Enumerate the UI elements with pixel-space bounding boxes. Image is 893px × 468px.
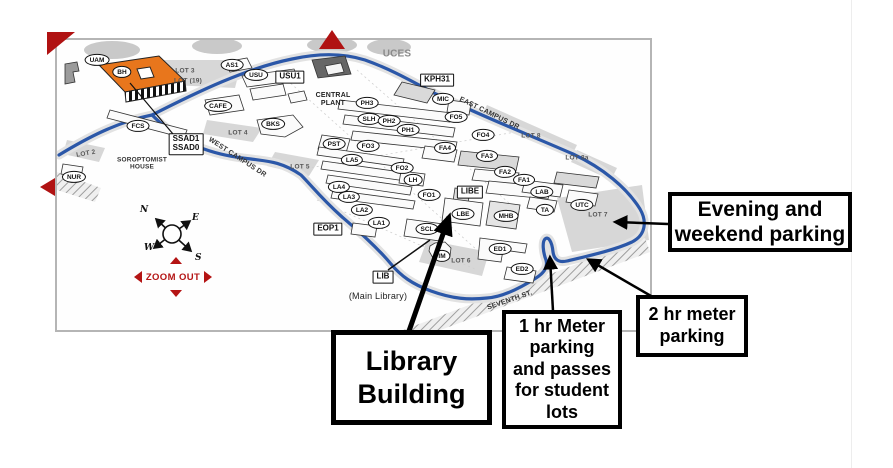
map-label--main-library-: (Main Library) <box>349 291 407 301</box>
zoom-out-label[interactable]: ZOOM OUT <box>146 272 200 283</box>
map-label-soroptomist-house: SOROPTOMIST HOUSE <box>117 157 167 172</box>
zoom-out-right-arrow-icon[interactable] <box>204 271 212 283</box>
zoom-out-up-arrow-icon[interactable] <box>170 257 182 264</box>
map-label-lot-5: LOT 5 <box>290 163 309 170</box>
map-frame[interactable]: UAMBHAS1USUUSU1CAFEBKSFCSNURSSAD1SSAD0KP… <box>55 38 652 332</box>
map-label-lot-7: LOT 7 <box>588 211 607 218</box>
zoom-out-left-arrow-icon[interactable] <box>134 271 142 283</box>
map-label-lot-6: LOT 6 <box>451 257 470 264</box>
map-label-lot-4: LOT 4 <box>228 129 247 136</box>
callout-evening-weekend-parking: Evening andweekend parking <box>668 192 852 252</box>
map-label-east-campus-dr: EAST CAMPUS DR <box>458 96 521 132</box>
map-label-west-campus-dr: WEST CAMPUS DR <box>207 136 268 179</box>
compass-north-label: N <box>140 205 148 215</box>
pan-up-icon[interactable] <box>319 30 345 49</box>
callout-one-hr-meter-parking: 1 hr Meterparkingand passesfor studentlo… <box>502 310 622 429</box>
map-label-lot-2: LOT 2 <box>76 149 96 160</box>
map-label-lot-8a: LOT 8a <box>565 154 588 161</box>
map-label-central-plant: CENTRAL PLANT <box>316 92 351 108</box>
compass-west-label: W <box>144 243 154 253</box>
campus-map-viewer: UAMBHAS1USUUSU1CAFEBKSFCSNURSSAD1SSAD0KP… <box>0 0 893 468</box>
pan-left-icon[interactable] <box>40 178 55 196</box>
map-label-lot-19-: LOT (19) <box>174 77 202 84</box>
compass-east-label: E <box>192 213 199 223</box>
zoom-out-control[interactable]: ZOOM OUT <box>134 264 212 290</box>
pan-top-left-icon[interactable] <box>47 32 75 55</box>
map-label-uces: UCES <box>383 48 412 60</box>
map-label-lot-8: LOT 8 <box>521 132 540 139</box>
map-label-lot-3: LOT 3 <box>175 67 194 74</box>
callout-two-hr-meter-parking: 2 hr meterparking <box>636 295 748 357</box>
compass-south-label: S <box>195 253 202 263</box>
zoom-out-down-arrow-icon[interactable] <box>170 290 182 297</box>
callout-library-building: LibraryBuilding <box>331 330 492 425</box>
